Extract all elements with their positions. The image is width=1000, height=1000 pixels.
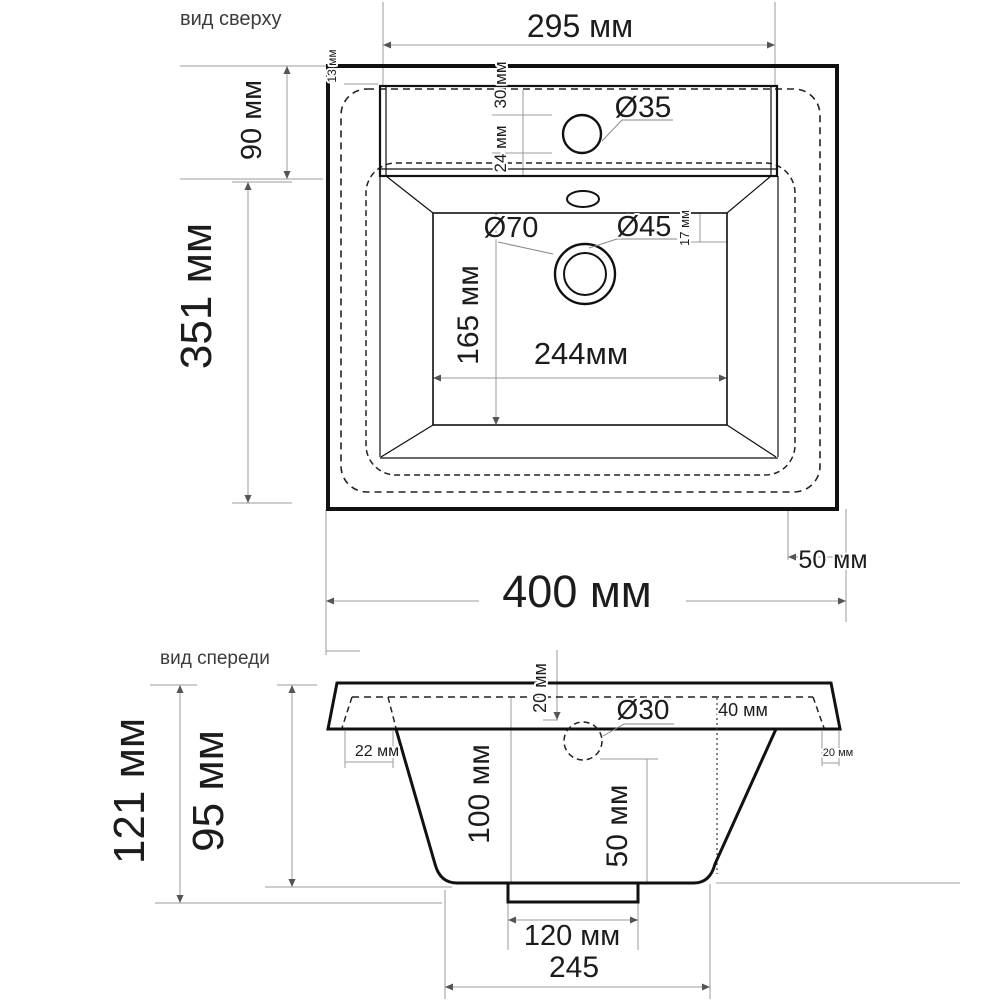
dia-35-label: Ø35 (615, 91, 672, 124)
top-view-title: вид сверху (180, 8, 281, 30)
technical-drawing-sink: вид сверху 295 мм 13 мм 90 мм 351 мм 30 … (0, 0, 1000, 1000)
drain-stub (508, 883, 638, 902)
dim-244-label: 244мм (534, 336, 628, 371)
dim-295-label: 295 мм (527, 8, 633, 44)
dim-95-label: 95 мм (184, 730, 233, 852)
dim-121-label: 121 мм (105, 718, 154, 864)
hidden-edge-left-outer (342, 697, 352, 728)
dim-30-label: 30 мм (491, 61, 510, 108)
slope-edge-bottom-right (727, 425, 776, 457)
dim-22-label: 22 мм (355, 743, 399, 760)
top-view: вид сверху 295 мм 13 мм 90 мм 351 мм 30 … (172, 2, 868, 655)
front-view-title: вид спереди (160, 648, 270, 669)
dim-400-label: 400 мм (502, 566, 651, 617)
slope-edge-bottom-left (381, 425, 433, 457)
dim-351-label: 351 мм (172, 223, 221, 369)
faucet-hole (563, 115, 601, 153)
dim-13-label: 13 мм (325, 49, 339, 82)
drawing-canvas: вид сверху 295 мм 13 мм 90 мм 351 мм 30 … (0, 0, 1000, 1000)
dim-20-right-label: 20 мм (823, 747, 853, 759)
dia-30-label: Ø30 (617, 694, 670, 725)
slope-edge-top-left (386, 176, 433, 213)
hidden-edge-left-inner (388, 697, 396, 728)
dim-100-label: 100 мм (463, 744, 496, 844)
hidden-edge-outer (341, 89, 820, 492)
drain-hole-inner (564, 253, 606, 295)
dim-50-front-label: 50 мм (601, 785, 634, 868)
bowl-profile (396, 729, 776, 883)
dim-40-label: 40 мм (718, 700, 768, 720)
dim-120-label: 120 мм (524, 920, 620, 952)
dim-20-top-label: 20 мм (530, 663, 550, 713)
dim-17-label: 17 мм (677, 210, 692, 246)
overflow-slot (567, 191, 599, 207)
dim-50-label: 50 мм (798, 546, 867, 574)
dim-24-label: 24 мм (491, 125, 510, 172)
dia-70-label: Ø70 (484, 212, 539, 244)
dim-90-label: 90 мм (236, 80, 268, 160)
slope-edge-top-right (727, 176, 771, 213)
dia-45-label: Ø45 (617, 211, 672, 243)
hidden-edge-right (813, 697, 824, 728)
front-view: вид спереди 121 мм 95 мм 20 мм Ø30 40 мм… (105, 648, 960, 999)
dim-245-label: 245 (549, 951, 599, 984)
dim-165-label: 165 мм (452, 265, 485, 365)
